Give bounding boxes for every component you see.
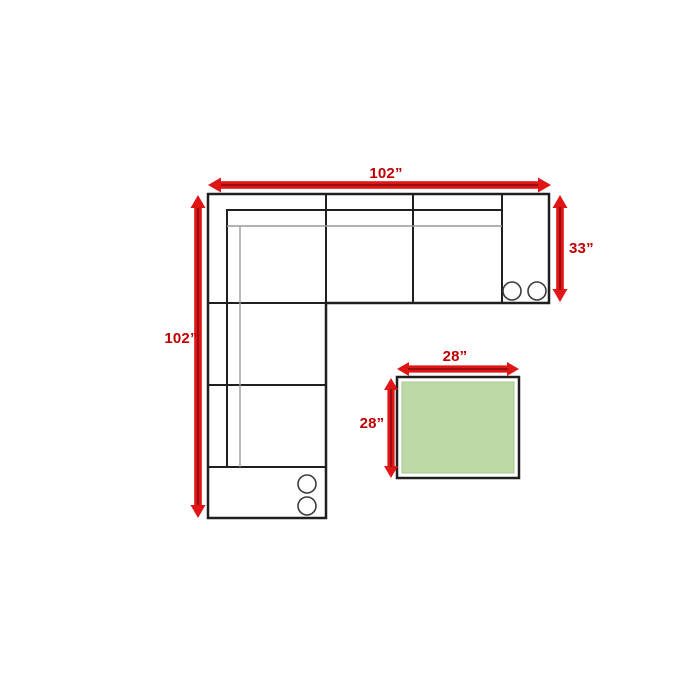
sofa-height-arrow <box>191 195 206 518</box>
armrest-cupholder-icon-2 <box>298 497 316 515</box>
ottoman-width-label: 28” <box>443 348 468 365</box>
arrow-stripe <box>221 184 538 186</box>
sofa-depth-label: 33” <box>569 240 594 257</box>
arrow-stripe <box>408 368 508 370</box>
sofa-depth-arrow <box>553 195 568 302</box>
console-cupholder-icon-1 <box>503 282 521 300</box>
arrow-stripe <box>559 207 561 290</box>
ottoman-top-surface <box>402 382 514 473</box>
arrow-stripe <box>390 389 392 467</box>
sofa-width-label: 102” <box>369 165 402 182</box>
sofa-dimension-diagram: 102” 102” 33” 28” 28” <box>0 0 700 700</box>
page-background: 102” 102” 33” 28” 28” <box>0 0 700 700</box>
dimension-labels: 102” 102” 33” 28” 28” <box>164 165 593 432</box>
arrow-stripe <box>197 208 199 505</box>
armrest-cupholder-icon-1 <box>298 475 316 493</box>
console-cupholder-icon-2 <box>528 282 546 300</box>
ottoman <box>397 377 519 478</box>
sofa-height-label: 102” <box>164 330 197 347</box>
ottoman-height-label: 28” <box>360 415 385 432</box>
